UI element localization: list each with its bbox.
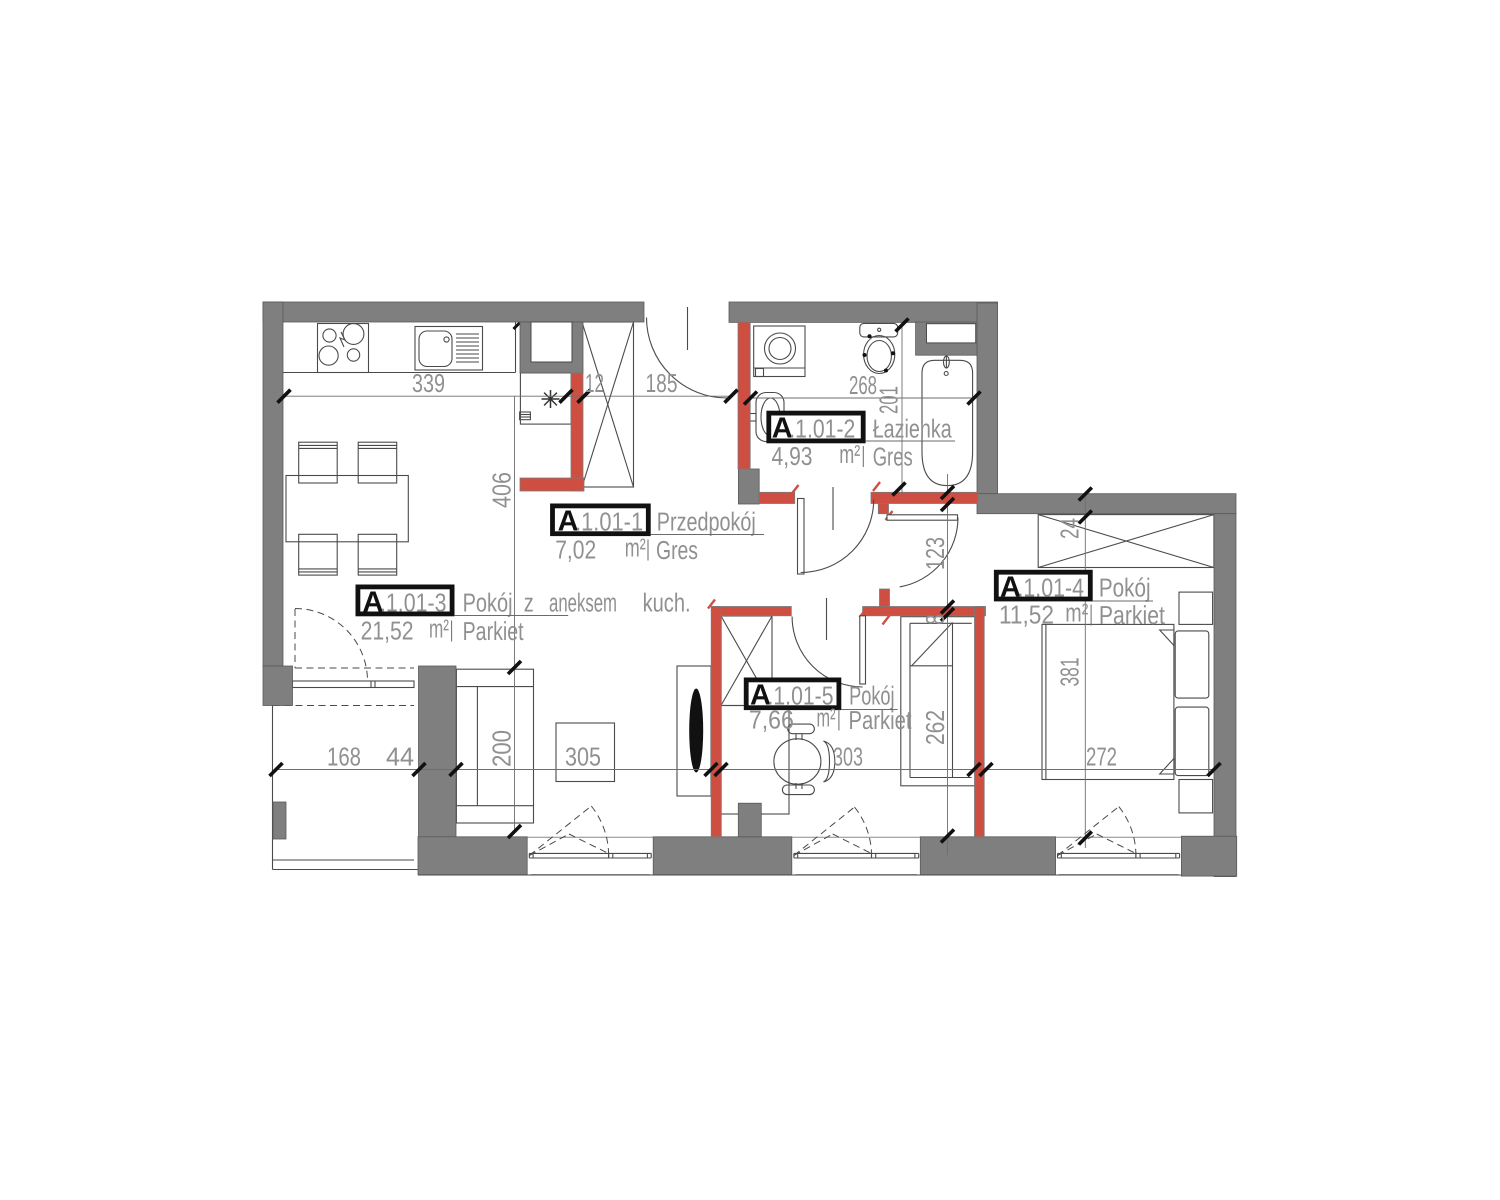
svg-text:Gres: Gres bbox=[656, 535, 698, 565]
svg-text:7,66: 7,66 bbox=[749, 705, 794, 735]
svg-text:262: 262 bbox=[920, 710, 950, 745]
svg-text:m²: m² bbox=[429, 614, 449, 644]
svg-text:8: 8 bbox=[920, 615, 950, 625]
svg-text:185: 185 bbox=[646, 368, 678, 398]
svg-text:Parkiet: Parkiet bbox=[849, 705, 913, 735]
svg-text:m²: m² bbox=[839, 439, 860, 469]
svg-text:aneksem: aneksem bbox=[549, 588, 617, 618]
svg-text:m²: m² bbox=[1065, 598, 1088, 628]
svg-text:Gres: Gres bbox=[873, 442, 913, 472]
svg-text:Przedpokój: Przedpokój bbox=[657, 507, 756, 537]
svg-text:Łazienka: Łazienka bbox=[873, 414, 952, 444]
svg-text:m²: m² bbox=[817, 703, 836, 733]
svg-text:11,52: 11,52 bbox=[999, 600, 1054, 630]
svg-text:Pokój: Pokój bbox=[1099, 573, 1151, 603]
svg-text:339: 339 bbox=[412, 368, 445, 398]
svg-text:m²: m² bbox=[625, 533, 646, 563]
svg-text:200: 200 bbox=[487, 730, 517, 767]
svg-text:Pokój: Pokój bbox=[463, 588, 513, 618]
svg-text:201: 201 bbox=[874, 386, 904, 414]
svg-text:7,02: 7,02 bbox=[555, 535, 596, 565]
svg-text:z: z bbox=[524, 588, 534, 618]
svg-text:303: 303 bbox=[833, 742, 863, 772]
svg-text:44: 44 bbox=[386, 742, 414, 772]
svg-text:Parkiet: Parkiet bbox=[1099, 600, 1166, 630]
svg-text:24: 24 bbox=[1055, 518, 1085, 539]
svg-text:305: 305 bbox=[565, 742, 601, 772]
svg-text:123: 123 bbox=[920, 537, 950, 570]
svg-text:Parkiet: Parkiet bbox=[463, 616, 525, 646]
svg-text:272: 272 bbox=[1086, 742, 1117, 772]
svg-text:21,52: 21,52 bbox=[361, 616, 414, 646]
svg-text:12: 12 bbox=[585, 368, 604, 398]
svg-text:168: 168 bbox=[327, 742, 361, 772]
svg-text:kuch.: kuch. bbox=[643, 588, 691, 618]
svg-text:381: 381 bbox=[1055, 658, 1085, 687]
svg-text:4,93: 4,93 bbox=[772, 441, 813, 471]
svg-text:406: 406 bbox=[487, 472, 517, 508]
